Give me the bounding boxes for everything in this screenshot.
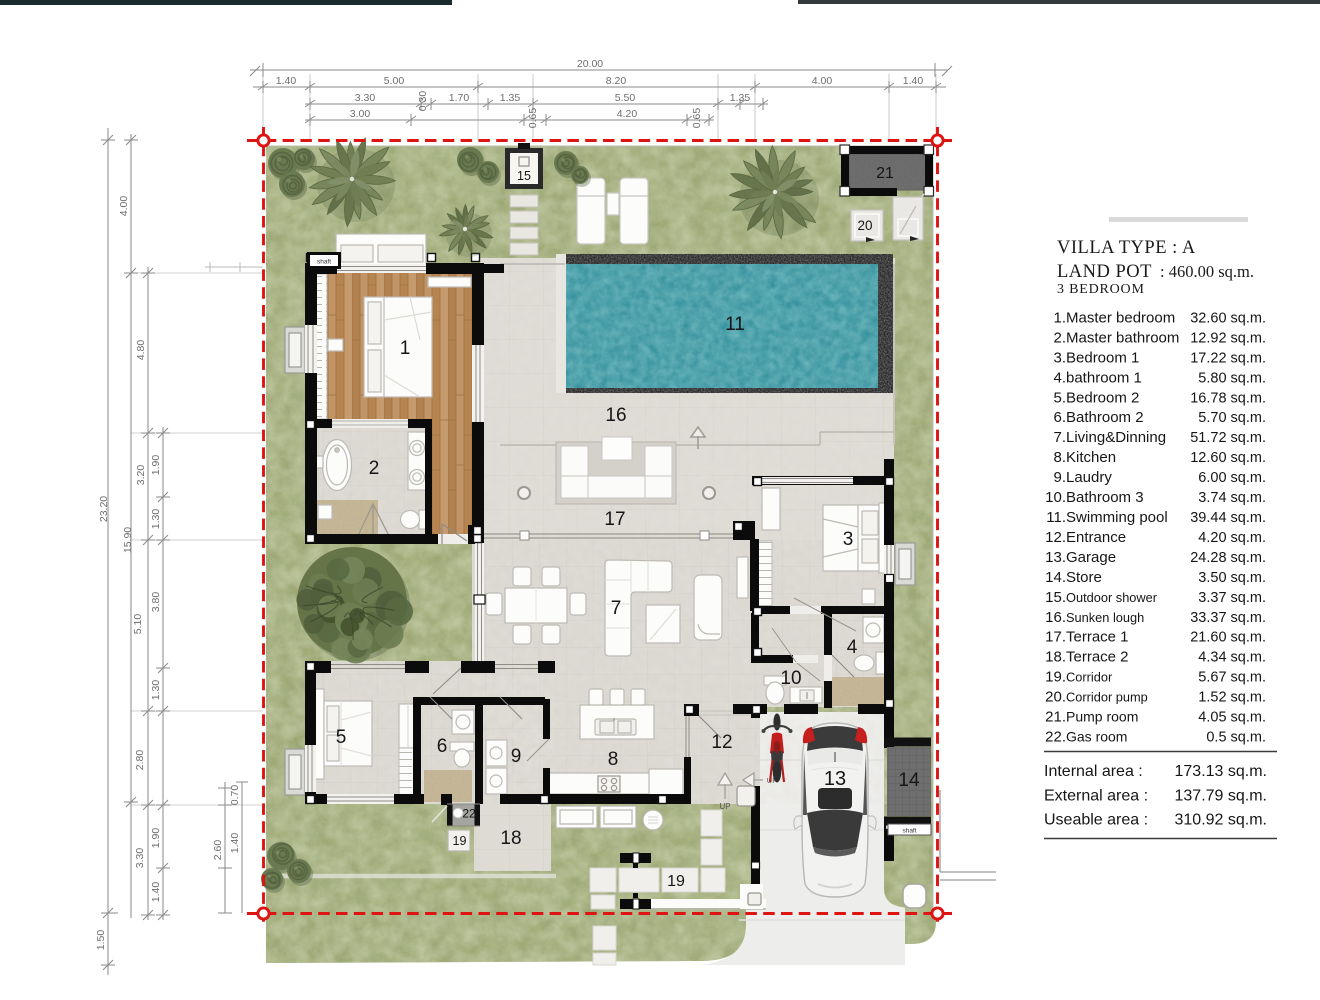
svg-text:8.20: 8.20	[606, 75, 627, 87]
svg-text:5.: 5.	[1053, 389, 1066, 406]
svg-text:0.70: 0.70	[229, 785, 241, 806]
svg-text:: 460.00 sq.m.: : 460.00 sq.m.	[1160, 262, 1254, 281]
svg-text:Corridor: Corridor	[1066, 670, 1113, 685]
svg-text:12.92 sq.m.: 12.92 sq.m.	[1190, 330, 1266, 346]
svg-text:Living&Dinning: Living&Dinning	[1066, 429, 1166, 446]
svg-text:4.00: 4.00	[118, 196, 130, 217]
svg-text:21.: 21.	[1045, 709, 1066, 726]
svg-text:1: 1	[400, 338, 411, 359]
svg-text:3.: 3.	[1053, 349, 1066, 366]
svg-text:1.30: 1.30	[150, 509, 162, 530]
svg-text:VILLA TYPE : A: VILLA TYPE : A	[1057, 238, 1196, 258]
svg-text:1.35: 1.35	[500, 92, 521, 104]
svg-text:1.40: 1.40	[150, 882, 162, 903]
svg-text:11: 11	[725, 314, 745, 335]
svg-text:16.: 16.	[1045, 609, 1066, 626]
svg-text:1.70: 1.70	[449, 92, 470, 104]
svg-text:1.: 1.	[1053, 310, 1066, 327]
svg-text:6.: 6.	[1053, 409, 1066, 426]
svg-text:Bedroom 1: Bedroom 1	[1066, 349, 1139, 366]
svg-text:17.: 17.	[1045, 629, 1066, 646]
svg-text:10: 10	[780, 668, 801, 689]
svg-text:3.50 sq.m.: 3.50 sq.m.	[1198, 570, 1266, 586]
svg-text:9: 9	[511, 746, 522, 767]
svg-text:4.05 sq.m.: 4.05 sq.m.	[1198, 710, 1266, 726]
svg-text:3.30: 3.30	[134, 848, 146, 869]
svg-text:15.90: 15.90	[122, 527, 134, 553]
svg-text:2.80: 2.80	[134, 750, 146, 771]
svg-text:3.30: 3.30	[355, 92, 376, 104]
svg-text:4.80: 4.80	[135, 340, 147, 361]
svg-text:4.34 sq.m.: 4.34 sq.m.	[1198, 650, 1266, 666]
svg-text:3: 3	[843, 529, 854, 550]
svg-text:3.74 sq.m.: 3.74 sq.m.	[1198, 490, 1266, 506]
svg-text:Bedroom 2: Bedroom 2	[1066, 389, 1139, 406]
svg-text:Store: Store	[1066, 569, 1102, 586]
svg-text:24.28 sq.m.: 24.28 sq.m.	[1190, 550, 1266, 566]
svg-text:15.: 15.	[1045, 589, 1066, 606]
svg-text:23.20: 23.20	[98, 496, 110, 522]
svg-text:137.79 sq.m.: 137.79 sq.m.	[1175, 787, 1268, 804]
svg-text:310.92 sq.m.: 310.92 sq.m.	[1175, 812, 1268, 829]
svg-text:11.: 11.	[1046, 509, 1066, 526]
svg-text:16.78 sq.m.: 16.78 sq.m.	[1190, 390, 1266, 406]
svg-text:22.: 22.	[1045, 729, 1066, 746]
svg-text:1.40: 1.40	[903, 75, 924, 87]
svg-text:19: 19	[667, 873, 685, 890]
svg-text:12.: 12.	[1045, 529, 1066, 546]
svg-text:39.44 sq.m.: 39.44 sq.m.	[1190, 510, 1266, 526]
svg-text:Useable area :: Useable area :	[1044, 812, 1148, 829]
svg-text:8: 8	[608, 749, 619, 770]
svg-text:18: 18	[500, 828, 521, 849]
svg-text:1.52 sq.m.: 1.52 sq.m.	[1198, 690, 1266, 706]
svg-text:33.37 sq.m.: 33.37 sq.m.	[1190, 610, 1266, 626]
svg-text:4.: 4.	[1053, 369, 1066, 386]
svg-text:LAND POT: LAND POT	[1057, 262, 1152, 282]
svg-text:1.40: 1.40	[276, 75, 297, 87]
svg-text:5.80 sq.m.: 5.80 sq.m.	[1198, 370, 1266, 386]
svg-text:External area :: External area :	[1044, 787, 1148, 804]
svg-text:Laudry: Laudry	[1066, 469, 1112, 486]
svg-text:Terrace 1: Terrace 1	[1066, 629, 1129, 646]
svg-text:5.00: 5.00	[384, 75, 405, 87]
svg-text:17.22 sq.m.: 17.22 sq.m.	[1190, 350, 1266, 366]
svg-text:5.70 sq.m.: 5.70 sq.m.	[1198, 410, 1266, 426]
svg-text:16: 16	[605, 405, 626, 426]
svg-text:Master bathroom: Master bathroom	[1066, 329, 1179, 346]
svg-text:173.13 sq.m.: 173.13 sq.m.	[1175, 763, 1268, 780]
svg-text:Entrance: Entrance	[1066, 529, 1126, 546]
svg-text:Garage: Garage	[1066, 549, 1116, 566]
svg-text:2.60: 2.60	[212, 840, 224, 861]
svg-text:1.90: 1.90	[150, 828, 162, 849]
svg-text:9.: 9.	[1053, 469, 1066, 486]
svg-text:22: 22	[462, 807, 476, 821]
svg-text:6: 6	[437, 736, 448, 757]
svg-text:20.: 20.	[1045, 689, 1066, 706]
svg-text:32.60 sq.m.: 32.60 sq.m.	[1190, 311, 1266, 327]
svg-text:1.50: 1.50	[95, 930, 107, 951]
svg-text:12: 12	[711, 732, 732, 753]
svg-text:5.50: 5.50	[615, 92, 636, 104]
svg-text:1.35: 1.35	[730, 92, 751, 104]
svg-text:14.: 14.	[1045, 569, 1066, 586]
svg-text:2.: 2.	[1053, 329, 1066, 346]
svg-text:17: 17	[604, 509, 625, 530]
svg-text:0.30: 0.30	[417, 91, 429, 112]
svg-text:0.65: 0.65	[527, 108, 539, 129]
svg-text:19.: 19.	[1045, 669, 1066, 686]
svg-text:0.65: 0.65	[691, 108, 703, 129]
svg-text:7.: 7.	[1053, 429, 1066, 446]
svg-text:3 BEDROOM: 3 BEDROOM	[1057, 282, 1145, 297]
svg-text:5.67 sq.m.: 5.67 sq.m.	[1198, 670, 1266, 686]
svg-text:15: 15	[517, 169, 531, 183]
svg-text:20.00: 20.00	[577, 58, 603, 70]
svg-text:bathroom 1: bathroom 1	[1066, 369, 1142, 386]
svg-text:Terrace 2: Terrace 2	[1066, 649, 1129, 666]
svg-text:3.37 sq.m.: 3.37 sq.m.	[1198, 590, 1266, 606]
svg-text:Swimming pool: Swimming pool	[1066, 509, 1168, 526]
svg-text:Kitchen: Kitchen	[1066, 449, 1116, 466]
svg-text:13: 13	[824, 768, 846, 790]
svg-text:Internal area :: Internal area :	[1044, 763, 1143, 780]
svg-text:Bathroom 3: Bathroom 3	[1066, 489, 1144, 506]
svg-text:Outdoor shower: Outdoor shower	[1066, 590, 1158, 605]
svg-text:6.00 sq.m.: 6.00 sq.m.	[1198, 470, 1266, 486]
svg-text:1.90: 1.90	[150, 455, 162, 476]
svg-text:4.00: 4.00	[812, 75, 833, 87]
svg-text:Gas room: Gas room	[1066, 729, 1127, 745]
svg-text:21: 21	[876, 165, 894, 182]
svg-text:2: 2	[369, 458, 380, 479]
svg-text:4.20 sq.m.: 4.20 sq.m.	[1198, 530, 1266, 546]
svg-text:13.: 13.	[1045, 549, 1066, 566]
svg-text:19: 19	[453, 834, 467, 848]
svg-text:Master bedroom: Master bedroom	[1066, 310, 1175, 327]
svg-text:14: 14	[898, 770, 920, 791]
svg-text:7: 7	[611, 598, 622, 619]
svg-text:shaft: shaft	[902, 828, 916, 835]
svg-text:5: 5	[336, 727, 347, 748]
svg-text:10.: 10.	[1045, 489, 1066, 506]
svg-text:20: 20	[857, 218, 872, 233]
svg-text:Sunken lough: Sunken lough	[1066, 610, 1144, 625]
svg-text:4: 4	[847, 637, 858, 658]
svg-text:Pump room: Pump room	[1066, 709, 1138, 725]
svg-text:1.30: 1.30	[150, 680, 162, 701]
svg-text:shaft: shaft	[317, 259, 331, 266]
svg-text:0.5 sq.m.: 0.5 sq.m.	[1206, 730, 1266, 746]
svg-text:12.60 sq.m.: 12.60 sq.m.	[1190, 450, 1266, 466]
svg-text:21.60 sq.m.: 21.60 sq.m.	[1190, 630, 1266, 646]
svg-text:3.80: 3.80	[150, 592, 162, 613]
svg-text:Corridor pump: Corridor pump	[1066, 690, 1148, 705]
svg-text:18.: 18.	[1045, 649, 1066, 666]
svg-text:5.10: 5.10	[132, 614, 144, 635]
svg-text:Bathroom 2: Bathroom 2	[1066, 409, 1144, 426]
svg-text:1.40: 1.40	[229, 833, 241, 854]
svg-text:51.72 sq.m.: 51.72 sq.m.	[1190, 430, 1266, 446]
svg-text:3.00: 3.00	[350, 108, 371, 120]
svg-text:3.20: 3.20	[135, 465, 147, 486]
svg-text:4.20: 4.20	[617, 108, 638, 120]
svg-text:8.: 8.	[1053, 449, 1066, 466]
